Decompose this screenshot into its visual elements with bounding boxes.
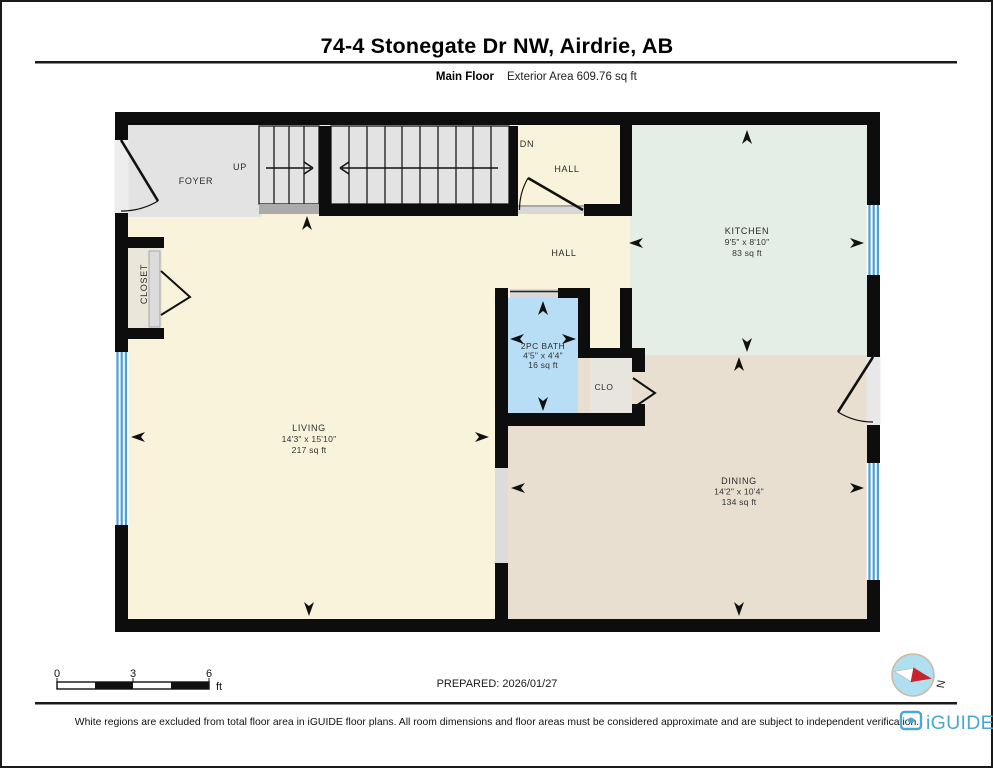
svg-text:2PC BATH: 2PC BATH	[521, 341, 565, 351]
floor-plan-canvas: 74-4 Stonegate Dr NW, Airdrie, AB Main F…	[0, 0, 993, 768]
window-living-left	[115, 352, 129, 525]
svg-text:16 sq ft: 16 sq ft	[528, 360, 558, 370]
svg-text:14'2" x 10'4": 14'2" x 10'4"	[714, 487, 764, 497]
exterior-area-label: Exterior Area 609.76 sq ft	[507, 71, 638, 83]
stairs-up	[259, 126, 319, 214]
svg-text:9'5" x 8'10": 9'5" x 8'10"	[725, 237, 770, 247]
bath-pocket-door	[510, 289, 558, 298]
footer-divider	[35, 702, 957, 705]
compass-icon: N	[890, 652, 947, 698]
living-dining-opening	[495, 468, 508, 563]
label-hall-lower: HALL	[551, 248, 576, 258]
prepared-date: PREPARED: 2026/01/27	[437, 678, 558, 690]
iguide-brand-text: iGUIDE	[926, 712, 993, 734]
svg-text:DINING: DINING	[721, 476, 757, 486]
label-clo: CLO	[595, 382, 614, 392]
svg-text:14'3" x 15'10": 14'3" x 15'10"	[282, 434, 337, 444]
footer-disclaimer: White regions are excluded from total fl…	[75, 717, 919, 728]
label-hall-upper: HALL	[554, 164, 579, 174]
floor-plan: FOYER UP DN HALL HALL CLOSET CLO KITCHEN…	[115, 112, 881, 632]
floor-label: Main Floor	[436, 71, 495, 83]
svg-text:217 sq ft: 217 sq ft	[292, 445, 327, 455]
label-up: UP	[233, 162, 247, 172]
svg-text:LIVING: LIVING	[292, 423, 326, 433]
header-divider	[35, 61, 957, 64]
floor-plan-page: 74-4 Stonegate Dr NW, Airdrie, AB Main F…	[0, 0, 993, 768]
svg-text:134 sq ft: 134 sq ft	[722, 497, 757, 507]
scale-unit: ft	[216, 681, 222, 693]
window-kitchen-right	[867, 205, 881, 275]
stairs-down	[331, 126, 509, 204]
label-dn: DN	[520, 139, 534, 149]
svg-text:4'5" x 4'4": 4'5" x 4'4"	[523, 351, 563, 361]
label-closet: CLOSET	[139, 264, 149, 304]
page-title: 74-4 Stonegate Dr NW, Airdrie, AB	[321, 34, 674, 58]
scale-bar: 0 3 6 ft	[54, 668, 222, 693]
label-foyer: FOYER	[179, 176, 214, 186]
svg-text:83 sq ft: 83 sq ft	[732, 248, 762, 258]
compass-north-label: N	[933, 679, 946, 689]
window-dining-right	[867, 463, 881, 580]
stairs-landing	[259, 204, 319, 214]
svg-text:KITCHEN: KITCHEN	[725, 226, 769, 236]
